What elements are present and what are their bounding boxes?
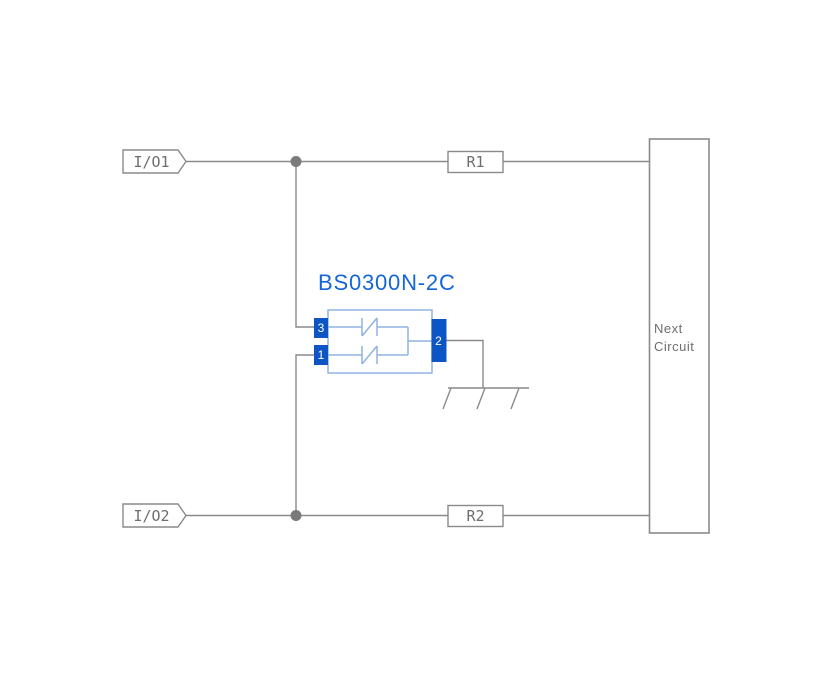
pin-2-label: 2 [431,319,446,362]
next-circuit-label: Next Circuit [654,320,708,356]
io1-tag-label: I/O1 [123,150,180,173]
pin-1-label: 1 [314,345,328,365]
io2-tag-label: I/O2 [123,504,180,527]
ground-symbol [443,388,529,409]
component-title: BS0300N-2C [318,270,478,296]
r1-label: R1 [448,151,503,172]
pin2-to-ground-wire [446,341,483,389]
ground-hatch-1 [443,388,451,409]
r2-label: R2 [448,505,503,526]
ground-hatch-2 [477,388,485,409]
io2-to-pin1-wire [296,355,314,516]
next-circuit-line1: Next [654,320,708,338]
io1-to-pin3-wire [296,162,314,328]
next-circuit-line2: Circuit [654,338,708,356]
pin-3-label: 3 [314,318,328,338]
schematic-canvas: I/O1 I/O2 R1 R2 BS0300N-2C Next Circuit … [0,0,832,675]
junction-dot-top [291,156,302,167]
ground-hatch-3 [511,388,519,409]
junction-dot-bottom [291,510,302,521]
